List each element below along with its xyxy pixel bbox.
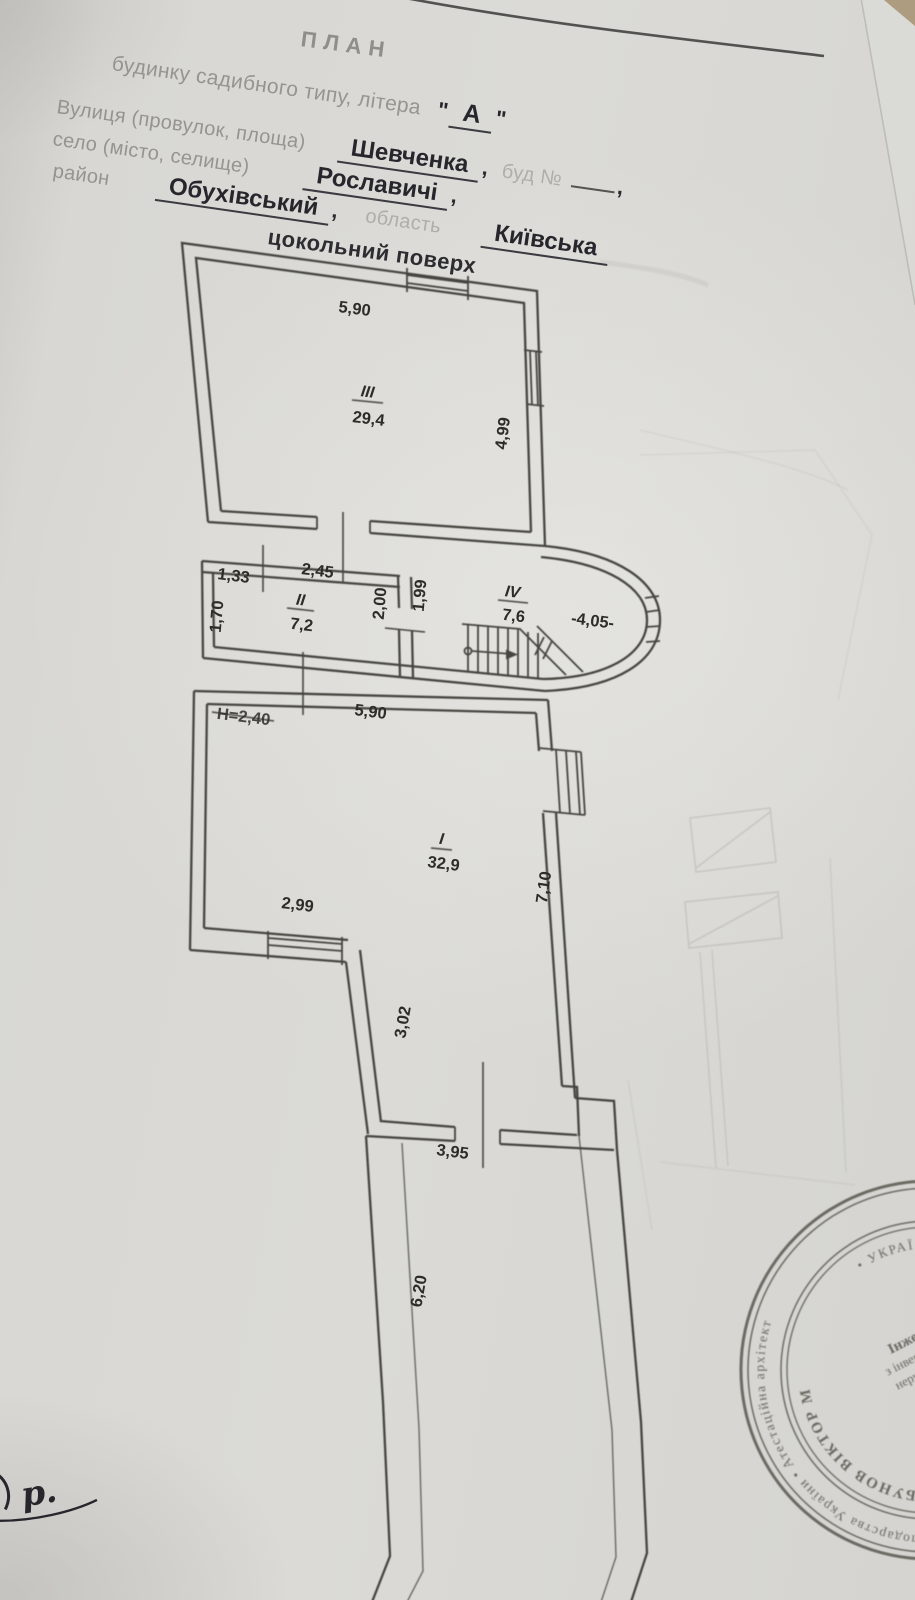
room2-number: II: [295, 592, 306, 610]
building-letter-value: А: [449, 97, 495, 134]
comma: ,: [616, 174, 626, 201]
dim-133: 1,33: [217, 565, 251, 587]
dim-200: 2,00: [370, 587, 391, 621]
bleed-through-ghost-lines: [600, 262, 872, 1230]
dim-199: 1,99: [410, 579, 431, 613]
photographed-document: III 29,4 II 7,2 IV 7,6 I 32,9 5,90 4,99 …: [0, 0, 915, 1600]
height-note: Н=2,40: [216, 705, 271, 729]
room4-area: 7,6: [501, 606, 526, 627]
room-label-underlines: [287, 400, 528, 850]
letter-open-quote: ": [436, 97, 450, 124]
room2-area: 7,2: [289, 615, 314, 636]
dim-245: 2,45: [301, 560, 335, 582]
comma: ,: [480, 154, 490, 181]
dim-299: 2,99: [281, 894, 315, 916]
dim-room3-depth: 4,99: [492, 416, 514, 450]
page-edge: [861, 0, 915, 305]
room3-number: III: [360, 383, 376, 402]
dim-room1-width: 5,90: [354, 701, 388, 723]
stamp-center-text: Інженер з інвентаризац нерухомого м Реєс…: [874, 1312, 915, 1438]
certification-stamp: каційний серт • о-комунального господарс…: [676, 1116, 915, 1600]
step-wall: [346, 950, 381, 1134]
dim-620: 6,20: [407, 1274, 430, 1309]
svg-text:• УКРАЇ •: • УКРАЇ •: [853, 1225, 915, 1283]
stamp-ring-inner-text: • УКРАЇ •: [853, 1225, 915, 1283]
plan-labels: III 29,4 II 7,2 IV 7,6 I 32,9 5,90 4,99 …: [207, 298, 615, 1308]
room-I-walls: [190, 691, 617, 1150]
dim-302: 3,02: [391, 1005, 414, 1040]
stairs: [462, 624, 583, 679]
room3-area: 29,4: [352, 408, 387, 430]
form-top-rule: [395, 0, 824, 56]
comma: ,: [330, 197, 340, 224]
dim-room3-width: 5,90: [338, 298, 372, 320]
dim-170: 1,70: [207, 600, 228, 634]
building-no-blank: [571, 171, 617, 193]
door-jambs-bottom: [455, 1127, 500, 1144]
stair-arrow-head: [506, 650, 518, 660]
handwriting-text: р.: [18, 1470, 59, 1515]
dim-room1-depth: 7,10: [533, 870, 555, 904]
exterior-passage: [366, 1136, 647, 1600]
room1-number: I: [438, 831, 445, 848]
handwriting-partial-stroke: [0, 1470, 11, 1510]
room4-number: IV: [504, 583, 522, 602]
level-mark: -4,05-: [570, 609, 615, 632]
building-no-label: буд №: [500, 160, 563, 191]
window-room1-right: [539, 748, 585, 815]
dim-395: 3,95: [436, 1141, 470, 1163]
floor-plan: [182, 243, 660, 1600]
comma: ,: [449, 183, 459, 210]
handwritten-note: р.: [0, 1457, 98, 1524]
letter-close-quote: ": [494, 105, 508, 132]
bottom-right-step: [562, 1086, 617, 1150]
district-label: район: [51, 160, 111, 191]
room1-area: 32,9: [427, 853, 461, 875]
